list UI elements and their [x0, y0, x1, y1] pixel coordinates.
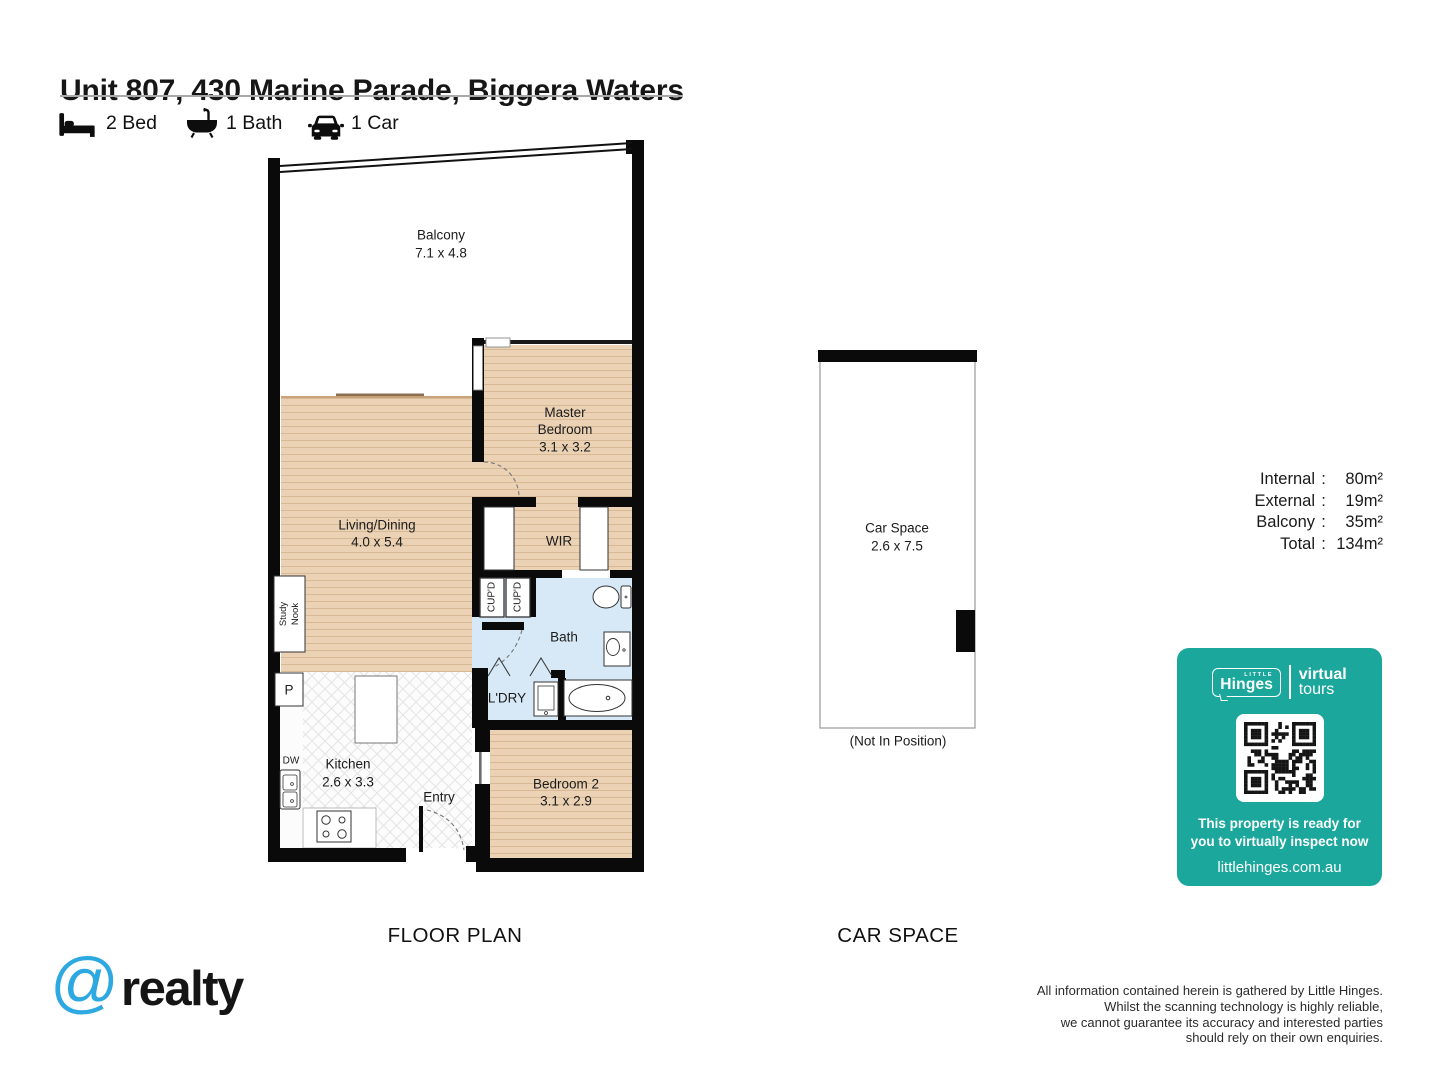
car-space-note: (Not In Position) [850, 733, 947, 750]
area-colon: : [1315, 469, 1332, 491]
area-colon: : [1315, 491, 1332, 513]
room-dims-balcony: 7.1 x 4.8 [415, 245, 467, 262]
label-pantry: P [284, 682, 293, 699]
virtual-tour-badge: LITTLE Hinges virtual tours This propert… [1177, 648, 1382, 886]
area-row-external: External:19m² [1254, 491, 1383, 513]
area-value: 134m² [1332, 534, 1383, 556]
badge-website: littlehinges.com.au [1177, 859, 1382, 876]
area-colon: : [1315, 534, 1332, 556]
realty-wordmark: realty [121, 961, 243, 1017]
realty-logo: @realty [50, 948, 243, 1017]
room-label-kitchen: Kitchen [325, 756, 370, 773]
label-cupboard-2: CUP'D [513, 582, 526, 612]
room-label-bedroom-2: Bedroom 2 [533, 776, 599, 793]
area-label: Balcony [1256, 512, 1315, 534]
area-value: 35m² [1332, 512, 1383, 534]
little-hinges-logo: LITTLE Hinges virtual tours [1177, 665, 1382, 699]
qr-code-pattern [1244, 722, 1316, 794]
area-row-balcony: Balcony:35m² [1254, 512, 1383, 534]
area-label: Total [1280, 534, 1315, 556]
room-dims-living-dining: 4.0 x 5.4 [351, 534, 403, 551]
room-label-living-dining: Living/Dining [338, 517, 415, 534]
logo-divider [1289, 665, 1291, 699]
area-row-total: Total:134m² [1254, 534, 1383, 556]
area-summary: Internal:80m² External:19m² Balcony:35m²… [1254, 469, 1383, 555]
room-dims-bedroom-2: 3.1 x 2.9 [540, 793, 592, 810]
badge-message-line-1: This property is ready for [1177, 815, 1382, 833]
car-space-name: Car Space [865, 520, 929, 537]
disclaimer-line-4: should rely on their own enquiries. [1037, 1030, 1383, 1046]
floor-plan-drawing [0, 0, 1440, 1080]
disclaimer: All information contained herein is gath… [1037, 983, 1383, 1046]
brand-hinges: Hinges [1220, 677, 1273, 693]
at-symbol-icon: @ [50, 948, 119, 1016]
tagline-tours: tours [1299, 682, 1347, 698]
qr-code [1236, 714, 1324, 802]
room-label-balcony: Balcony [417, 227, 465, 244]
area-value: 19m² [1332, 491, 1383, 513]
area-colon: : [1315, 512, 1332, 534]
floor-plan-section-label: FLOOR PLAN [388, 924, 523, 948]
disclaimer-line-3: we cannot guarantee its accuracy and int… [1037, 1015, 1383, 1031]
room-dims-master-bedroom: 3.1 x 3.2 [539, 439, 591, 456]
balcony-railing [280, 143, 632, 172]
car-space-dims: 2.6 x 7.5 [871, 538, 923, 555]
badge-message-line-2: you to virtually inspect now [1177, 833, 1382, 851]
tagline-virtual: virtual [1299, 667, 1347, 683]
label-study-nook: Study Nook [278, 593, 302, 635]
area-value: 80m² [1332, 469, 1383, 491]
badge-message: This property is ready for you to virtua… [1177, 815, 1382, 850]
room-label-bath: Bath [550, 629, 578, 646]
room-label-entry: Entry [423, 789, 455, 806]
car-space-section-label: CAR SPACE [837, 924, 958, 948]
label-dishwasher: DW [283, 756, 300, 769]
room-label-laundry: L'DRY [488, 690, 526, 707]
disclaimer-line-2: Whilst the scanning technology is highly… [1037, 999, 1383, 1015]
area-row-internal: Internal:80m² [1254, 469, 1383, 491]
room-label-wir: WIR [546, 533, 572, 550]
door-leaves [479, 752, 482, 784]
virtual-tours-wordmark: virtual tours [1299, 667, 1347, 698]
area-label: External [1254, 491, 1315, 513]
room-label-master-bedroom: Master Bedroom [524, 404, 606, 438]
hinges-speech-bubble-icon: LITTLE Hinges [1212, 668, 1281, 697]
room-dims-kitchen: 2.6 x 3.3 [322, 774, 374, 791]
area-label: Internal [1260, 469, 1315, 491]
disclaimer-line-1: All information contained herein is gath… [1037, 983, 1383, 999]
label-cupboard-1: CUP'D [487, 582, 500, 612]
